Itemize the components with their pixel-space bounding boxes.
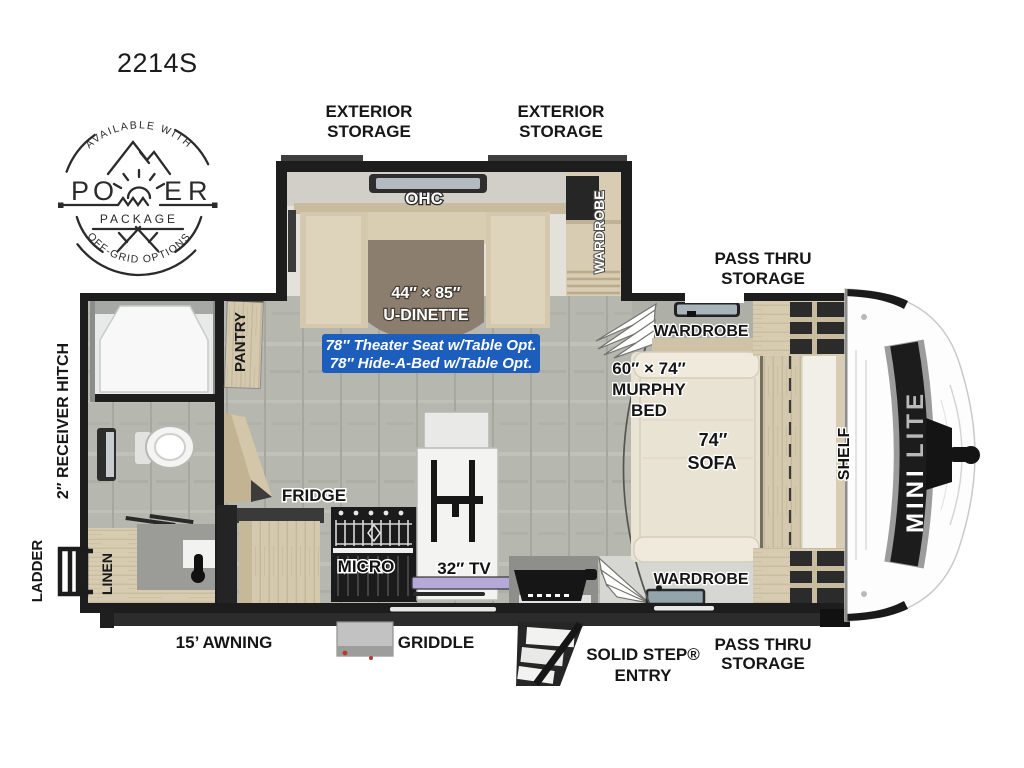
svg-text:PANTRY: PANTRY — [232, 312, 249, 372]
svg-text:SOLID STEP®: SOLID STEP® — [586, 645, 700, 664]
svg-text:MICRO: MICRO — [338, 557, 395, 576]
svg-text:FRIDGE: FRIDGE — [282, 486, 346, 505]
svg-text:EXTERIOR: EXTERIOR — [518, 102, 605, 121]
svg-text:60″ × 74″: 60″ × 74″ — [612, 359, 685, 378]
svg-text:EXTERIOR: EXTERIOR — [326, 102, 413, 121]
svg-text:78″ Hide-A-Bed w/Table Opt.: 78″ Hide-A-Bed w/Table Opt. — [330, 355, 533, 372]
svg-text:WARDROBE: WARDROBE — [653, 323, 748, 340]
svg-text:78″ Theater Seat w/Table Opt.: 78″ Theater Seat w/Table Opt. — [326, 337, 537, 354]
svg-text:ENTRY: ENTRY — [615, 666, 673, 685]
svg-text:PASS THRU: PASS THRU — [715, 635, 812, 654]
svg-text:MURPHY: MURPHY — [612, 380, 686, 399]
svg-text:MINI: MINI — [902, 466, 929, 533]
svg-text:STORAGE: STORAGE — [721, 269, 805, 288]
svg-text:OHC: OHC — [405, 189, 443, 208]
svg-text:BED: BED — [631, 401, 667, 420]
svg-text:15’ AWNING: 15’ AWNING — [176, 633, 273, 652]
svg-text:GRIDDLE: GRIDDLE — [398, 633, 475, 652]
svg-text:LITE: LITE — [902, 390, 929, 458]
svg-text:32″ TV: 32″ TV — [437, 559, 491, 578]
svg-text:2″ RECEIVER HITCH: 2″ RECEIVER HITCH — [55, 343, 72, 499]
svg-text:STORAGE: STORAGE — [327, 122, 411, 141]
svg-text:ROCKWOOD: ROCKWOOD — [894, 432, 901, 484]
svg-text:STORAGE: STORAGE — [721, 654, 805, 673]
svg-text:WARDROBE: WARDROBE — [591, 190, 607, 273]
svg-text:STORAGE: STORAGE — [519, 122, 603, 141]
svg-text:PASS THRU: PASS THRU — [715, 249, 812, 268]
svg-text:PO: PO — [71, 176, 118, 206]
svg-text:SOFA: SOFA — [687, 453, 736, 473]
svg-text:PACKAGE: PACKAGE — [100, 212, 178, 226]
svg-text:44″ × 85″: 44″ × 85″ — [391, 285, 460, 302]
svg-text:2214S: 2214S — [117, 48, 198, 78]
svg-text:WARDROBE: WARDROBE — [653, 571, 748, 588]
svg-text:74″: 74″ — [699, 430, 728, 450]
svg-text:LADDER: LADDER — [29, 540, 46, 603]
svg-text:LINEN: LINEN — [99, 553, 115, 595]
svg-text:ER: ER — [164, 176, 214, 206]
svg-text:SHELF: SHELF — [836, 428, 853, 481]
svg-text:U-DINETTE: U-DINETTE — [383, 307, 469, 324]
